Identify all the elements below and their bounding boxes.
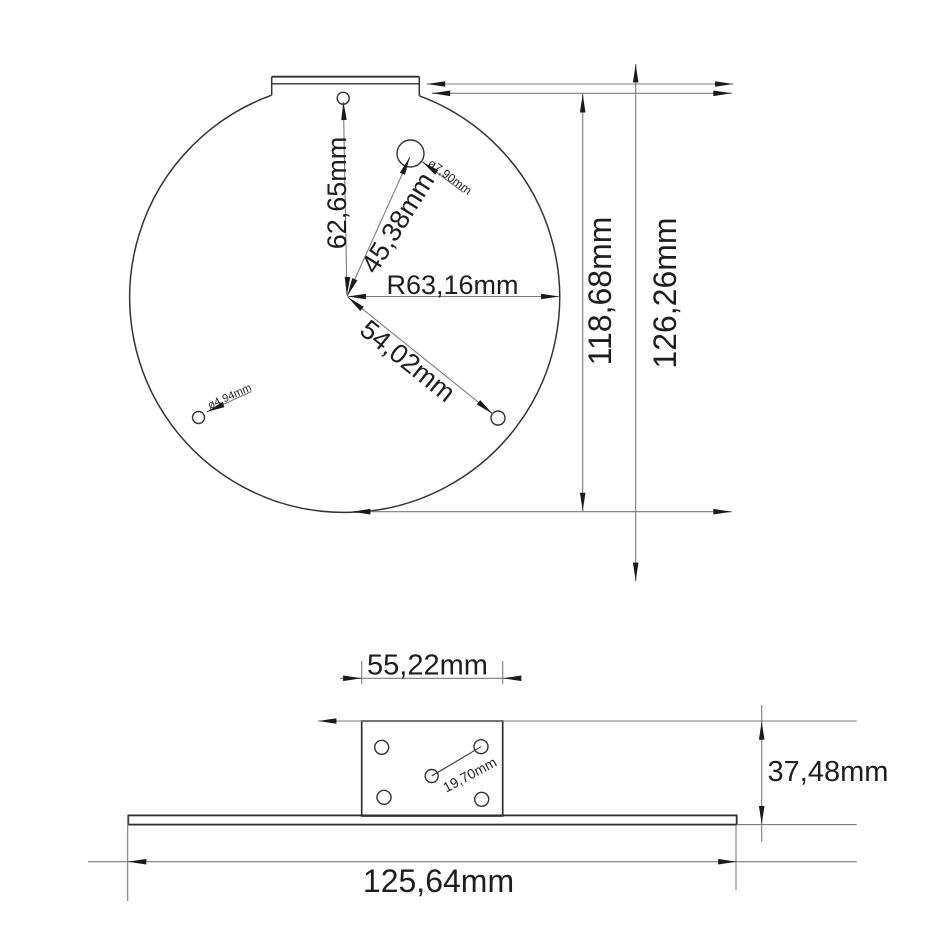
dim-label-center-to-lower-hole: 54,02mm xyxy=(354,314,461,408)
dim-label-hole-spacing: 19,70mm xyxy=(440,754,499,796)
lower-left-hole xyxy=(193,412,205,424)
arrow-lower-hole-downright xyxy=(491,412,493,414)
dim-label-tab-width: 55,22mm xyxy=(367,650,488,682)
arrow-large-hole-upright xyxy=(409,157,410,160)
dim-label-bracket-height: 37,48mm xyxy=(768,756,889,788)
dim-label-overall-height: 126,26mm xyxy=(647,217,683,368)
arrow-leader-small-hole xyxy=(207,411,210,412)
drawing-canvas: 62,65mm 45,38mm R63,16mm 54,02mm ø7,90mm… xyxy=(0,0,950,950)
bracket-hole-bottom-left xyxy=(377,790,391,804)
lower-right-hole xyxy=(491,411,505,425)
arrow-center-downleft xyxy=(347,293,348,296)
bracket-hole-top-left xyxy=(375,740,389,754)
dim-label-small-hole-dia: ø4,94mm xyxy=(206,382,253,412)
disc-face-view: 62,65mm 45,38mm R63,16mm 54,02mm ø7,90mm… xyxy=(130,64,734,581)
dim-label-inner-height: 118,68mm xyxy=(582,217,618,366)
dim-label-base-width: 125,64mm xyxy=(363,863,514,899)
arrow-leader-large-hole xyxy=(422,162,424,164)
dim-label-radius: R63,16mm xyxy=(386,270,518,300)
base-bracket-view: 55,22mm 19,70mm 37,48mm 125,64mm xyxy=(88,650,888,902)
dim-label-center-to-top-hole: 62,65mm xyxy=(322,137,352,250)
bracket-hole-bottom-right xyxy=(475,792,489,806)
technical-drawing: 62,65mm 45,38mm R63,16mm 54,02mm ø7,90mm… xyxy=(0,0,950,950)
large-hole xyxy=(397,140,424,167)
